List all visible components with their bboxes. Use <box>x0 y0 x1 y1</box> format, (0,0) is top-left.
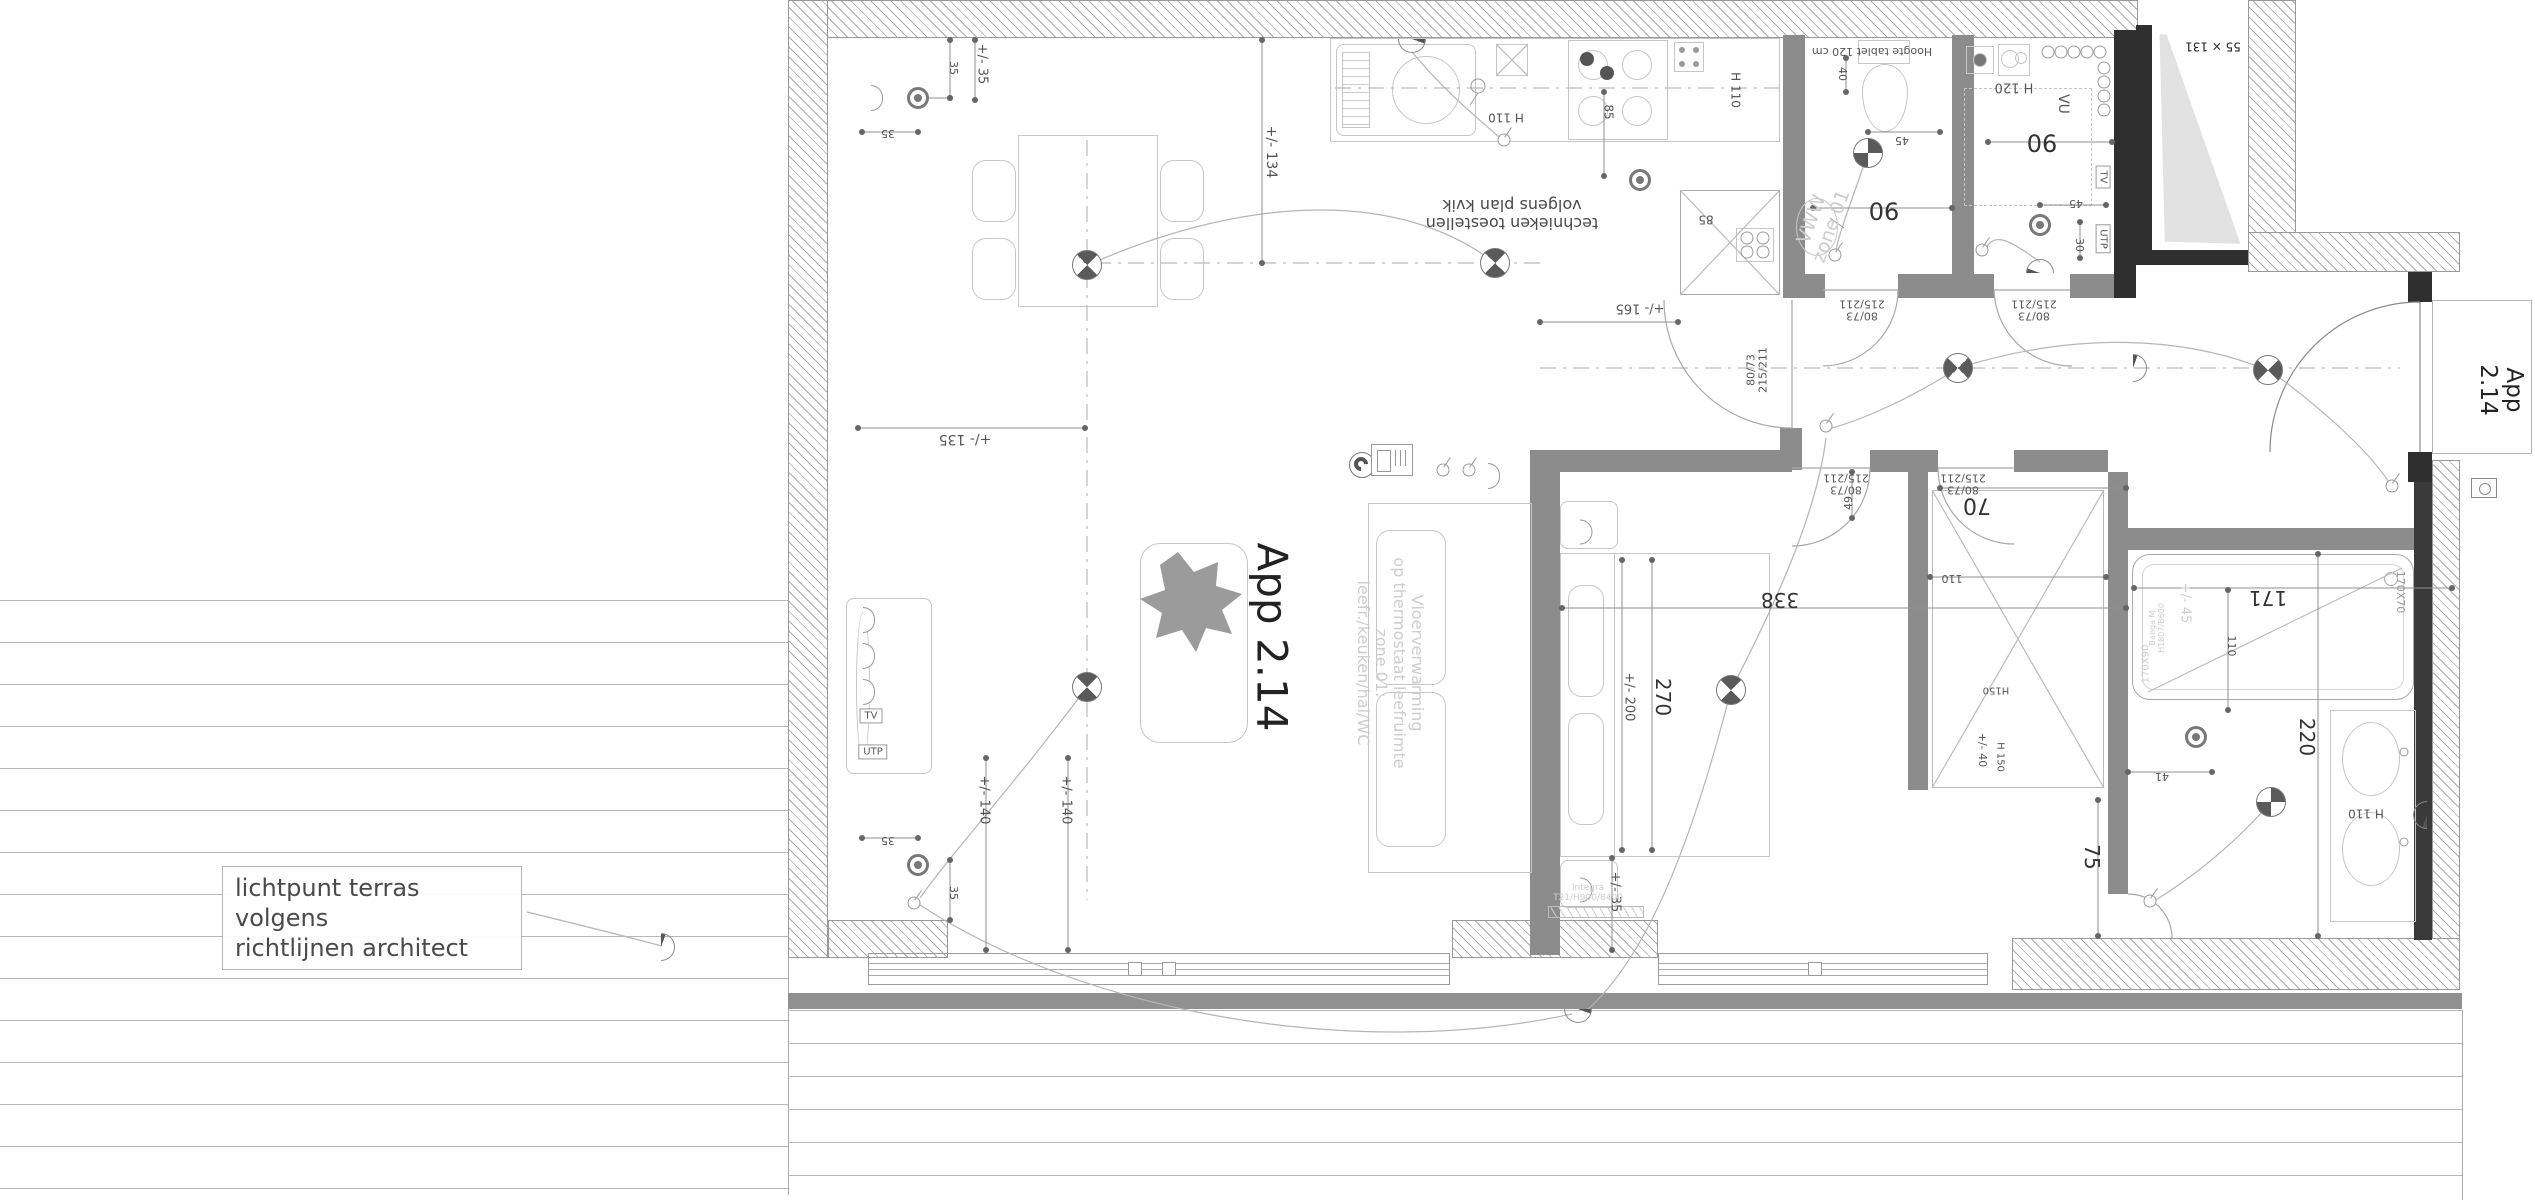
dim-40: 40 <box>1836 67 1848 81</box>
berging-vu: VU <box>2054 94 2070 114</box>
radiator-bedroom <box>1548 906 1644 918</box>
intercom-panel-icon <box>1371 444 1413 476</box>
ceiling-light-kitchen <box>1480 248 1510 278</box>
wall-hall-south-b <box>1870 450 1938 472</box>
coffee-table <box>1140 543 1248 743</box>
bath-size: 170X70 <box>2394 571 2406 614</box>
bed-blanket-line <box>1614 553 1615 857</box>
switch-hall-2 <box>1463 464 1476 477</box>
dining-chair-2 <box>972 238 1016 300</box>
dim-45-bath: +/- 45 <box>2177 583 2192 624</box>
pillow-2 <box>1568 713 1604 825</box>
kitchen-h110b: H 110 <box>1728 72 1741 108</box>
switch-hall-1 <box>1437 464 1450 477</box>
wc-note: Hoogte tablet 120 cm <box>1812 45 1932 57</box>
ceiling-light-bathroom <box>2250 781 2292 823</box>
wall-bedroom-west <box>1530 450 1560 955</box>
terrace-note: lichtpunt terras volgens richtlijnen arc… <box>222 866 522 970</box>
berging-socketdot <box>1973 53 1987 67</box>
dining-chair-1 <box>972 160 1016 222</box>
berging-h120: H 120 <box>1995 79 2034 94</box>
ceiling-light-living <box>1072 672 1102 702</box>
dim-110-closet: 110 <box>1942 572 1963 584</box>
bath-h110: H 110 <box>2348 806 2384 819</box>
wall-hall-south-a <box>1530 450 1792 472</box>
kitchen-85b: 85 <box>1698 212 1713 225</box>
dim-40-closet: +/- 40 <box>1976 733 1988 767</box>
dim-70: 70 <box>1963 492 1991 517</box>
basin-2 <box>2342 812 2400 886</box>
terrace-edge <box>788 993 2462 1009</box>
ceiling-light-wc <box>1847 132 1889 174</box>
ceiling-light-bedroom <box>1716 675 1746 705</box>
kitchen-h110a: H 110 <box>1488 110 1524 123</box>
door-label-bedroom: 80/73 215/211 <box>1823 471 1869 496</box>
wall-bedroom-east <box>1908 472 1928 790</box>
dim-165: +/- 165 <box>1616 300 1665 315</box>
berging-appliance-circle2 <box>2015 52 2027 64</box>
closet-h150a: H150 <box>1983 684 2010 695</box>
door-label-living: 80/73 215/211 <box>1746 347 1771 393</box>
switch-berging <box>1976 244 1989 257</box>
switch-entrance <box>2386 480 2399 493</box>
socket-wall-living-a <box>871 85 883 111</box>
switch-bedroom <box>1820 420 1833 433</box>
sliding-door-handle-2 <box>1162 962 1176 976</box>
ceiling-light-dining <box>1072 250 1102 280</box>
dim-200: +/- 200 <box>1621 673 1636 722</box>
floor-plan: lichtpunt terras volgens richtlijnen arc… <box>0 0 2535 1200</box>
terrace-note-line2: richtlijnen architect <box>235 934 468 962</box>
dim-90-berging: 90 <box>2027 129 2058 156</box>
hob-knob-1 <box>1580 52 1594 66</box>
hob-knob-2 <box>1600 66 1614 80</box>
window-bedroom <box>1658 953 1988 985</box>
dim-134: +/- 134 <box>1262 126 1278 179</box>
wall-wc-south-a <box>1783 274 1825 298</box>
door-label-wc: 80/73 215/211 <box>1839 297 1885 322</box>
kitchen-85a: 85 <box>1601 104 1614 119</box>
switch-kitchen <box>1498 134 1511 147</box>
dining-chair-4 <box>1160 238 1204 300</box>
dim-41: 41 <box>2155 770 2169 782</box>
dim-140a: +/- 140 <box>976 776 991 825</box>
dim-140b: +/- 140 <box>1058 776 1073 825</box>
living-utp: UTP <box>858 744 887 759</box>
wall-light-entrance <box>2133 354 2147 382</box>
dim-35b: 35 <box>947 61 959 75</box>
closet-h150b: H 150 <box>1994 742 2005 772</box>
sliding-door-handle-1 <box>1128 962 1142 976</box>
socket-kitchen <box>1629 169 1651 191</box>
kitchen-note: technieken toestellen volgens plan kvik <box>1426 196 1598 232</box>
terrace-note-line1: lichtpunt terras volgens <box>235 874 420 932</box>
switch-wc <box>1829 249 1842 262</box>
radiator-label: Integra T21/H900/8400 <box>1553 883 1623 903</box>
wall-light-berging <box>2026 259 2054 273</box>
dining-chair-3 <box>1160 160 1204 222</box>
closet <box>1932 490 2104 788</box>
socket-living-bottom <box>907 854 929 876</box>
entrance-jamb-top <box>2408 272 2432 302</box>
apartment-label-main: App 2.14 <box>1248 543 1295 732</box>
dim-35c: 35 <box>881 127 895 139</box>
dim-270: 270 <box>1652 678 1674 716</box>
wall-bathroom-north <box>2128 528 2418 550</box>
dim-171: 171 <box>2249 587 2287 609</box>
dim-35d: 35 <box>881 834 895 846</box>
doorbell-icon <box>2471 478 2497 498</box>
ceiling-light-hall-2 <box>2253 355 2283 385</box>
wall-exterior-top <box>788 0 2138 38</box>
window-frame-bottom <box>2136 250 2248 265</box>
ceiling-light-hall-1 <box>1943 353 1973 383</box>
dining-table <box>1018 135 1158 307</box>
socket-berging <box>2029 214 2051 236</box>
dim-45-berging: 45 <box>2069 197 2083 209</box>
bath-model: Banga M H1807/B600 <box>2149 603 2167 653</box>
kitchen-drainer <box>1342 52 1370 128</box>
wall-wc-south-b <box>1898 274 1994 298</box>
dim-49: 49 <box>1843 496 1855 510</box>
dim-75: 75 <box>2081 844 2103 869</box>
kitchen-vent-box <box>1674 42 1704 72</box>
entrance-jamb-bottom <box>2408 452 2432 482</box>
basin-1 <box>2342 722 2400 796</box>
socket-hall <box>1488 463 1500 489</box>
berging-tv: TV <box>2095 166 2110 189</box>
bathroom-wall-strip <box>2414 482 2432 940</box>
nightstand-top <box>1560 501 1618 549</box>
hob-burner-4 <box>1622 96 1652 126</box>
window-bedroom-handle <box>1808 962 1822 976</box>
wall-exterior-right <box>2432 460 2460 940</box>
column-berging <box>2114 30 2136 298</box>
socket-bathroom <box>2185 726 2207 748</box>
dim-35e: 35 <box>947 886 959 900</box>
wall-exterior-bottomright <box>2012 938 2460 990</box>
dim-90-wc: 90 <box>1869 197 1900 224</box>
wall-hall-south-c <box>2014 450 2108 472</box>
living-tv: TV <box>860 708 883 723</box>
wall-exterior-step <box>2248 232 2460 272</box>
hob-burner-2 <box>1622 50 1652 80</box>
dim-220: 220 <box>2296 718 2318 756</box>
dim-45-wc: 45 <box>1895 134 1909 146</box>
berging-utp: UTP <box>2095 224 2110 253</box>
switch-bathroom <box>2144 895 2157 908</box>
kitchen-socket-box <box>1496 44 1528 76</box>
toilet-bowl <box>1862 64 1908 132</box>
shaft-hob-symbol <box>1736 228 1774 262</box>
socket-living-top <box>907 87 929 109</box>
window-frame-left <box>2136 25 2152 265</box>
pillow-1 <box>1568 585 1604 697</box>
wall-bathroom-west <box>2108 472 2128 894</box>
wall-exterior-left <box>788 0 828 958</box>
door-label-berging: 80/73 215/211 <box>2011 297 2057 322</box>
dim-110-bath: 110 <box>2225 636 2237 657</box>
kitchen-sink-bowl <box>1392 56 1460 124</box>
window-size: 55 × 131 <box>2185 39 2241 52</box>
terrace-bottom-decking <box>788 1010 2463 1200</box>
dim-338: 338 <box>1761 589 1799 611</box>
apartment-label-entrance: App 2.14 <box>2474 364 2526 415</box>
sliding-door-living <box>868 953 1450 985</box>
dim-35a: +/- 35 <box>974 44 989 85</box>
wall-exterior-window-right <box>2248 0 2296 235</box>
wall-wc-west <box>1783 35 1805 297</box>
dim-135: +/- 135 <box>939 430 992 446</box>
switch-living <box>908 897 921 910</box>
dim-30: 30 <box>2073 238 2085 252</box>
floorheating-watermark: Vloerverwarming op thermostaat leefruimt… <box>1354 557 1426 768</box>
